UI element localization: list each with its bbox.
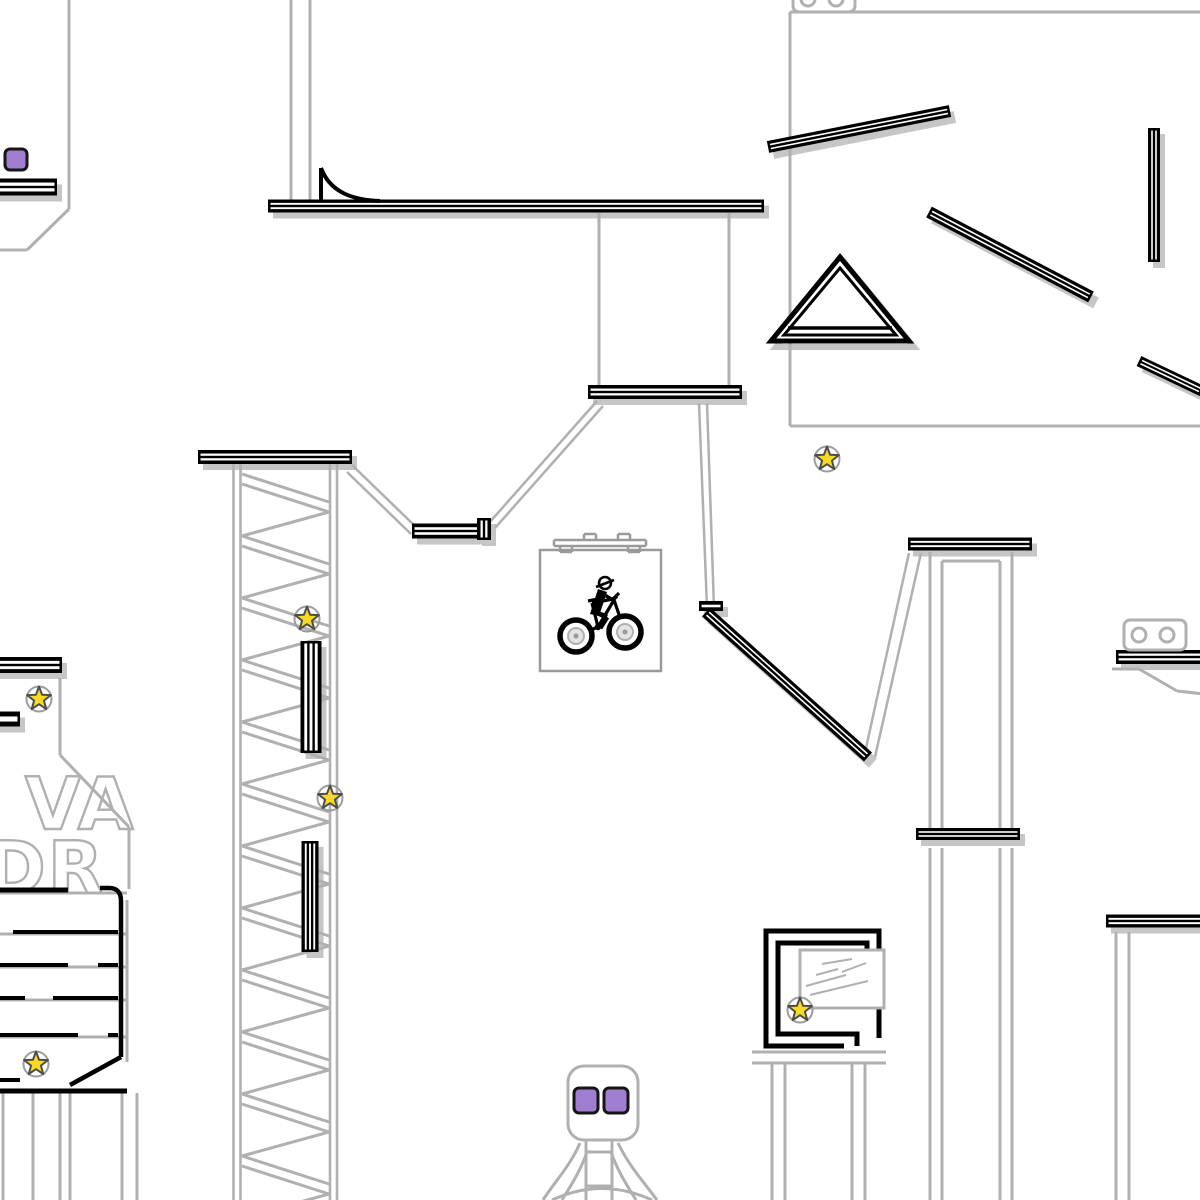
checkpoint-icon (604, 1088, 628, 1113)
track-canvas[interactable]: L VADR (0, 0, 1200, 1200)
checkpoint-icon (5, 149, 27, 170)
picture-frame (800, 950, 884, 1008)
star-icon (24, 1052, 49, 1077)
triangle-ramp (771, 257, 909, 341)
biker-player (560, 577, 641, 652)
camera-box (793, 0, 855, 12)
checkpoint-icon (574, 1088, 598, 1113)
tower-truss (234, 464, 338, 1200)
game-viewport[interactable]: L VADR (0, 0, 1200, 1200)
star-icon (788, 998, 813, 1023)
star-icon (27, 687, 52, 712)
star-icon (815, 447, 840, 472)
track-paths (0, 168, 879, 1091)
scenery-text-line2: DR (0, 826, 105, 910)
camera-box (1124, 620, 1186, 650)
